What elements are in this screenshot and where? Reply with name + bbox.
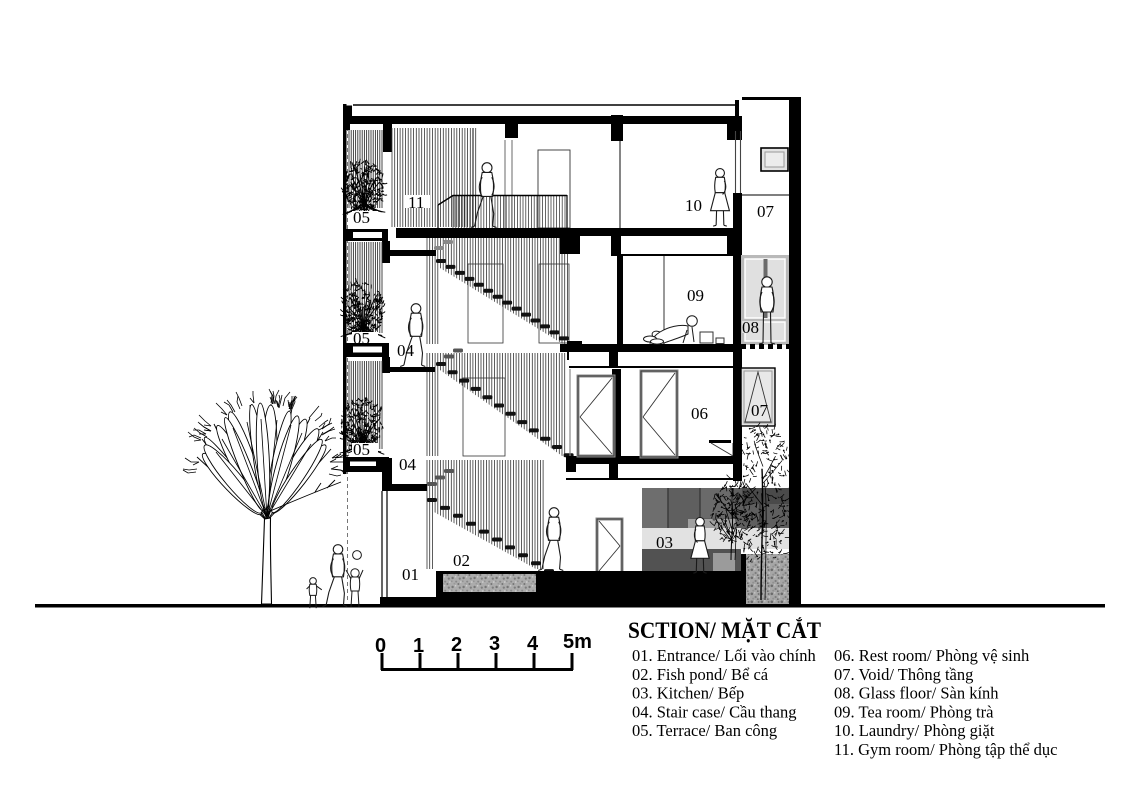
svg-text:02. Fish pond/ Bể cá: 02. Fish pond/ Bể cá <box>632 665 769 684</box>
svg-text:05: 05 <box>353 208 370 227</box>
svg-text:11: 11 <box>408 193 424 212</box>
svg-text:01. Entrance/ Lối vào chính: 01. Entrance/ Lối vào chính <box>632 646 816 665</box>
svg-text:09: 09 <box>687 286 704 305</box>
svg-text:4: 4 <box>527 633 539 655</box>
svg-text:10. Laundry/ Phòng giặt: 10. Laundry/ Phòng giặt <box>834 721 995 740</box>
svg-text:01: 01 <box>402 565 419 584</box>
svg-text:07: 07 <box>751 401 769 420</box>
svg-text:06. Rest room/ Phòng vệ sinh: 06. Rest room/ Phòng vệ sinh <box>834 646 1030 665</box>
svg-text:10: 10 <box>685 196 702 215</box>
svg-text:07: 07 <box>757 202 775 221</box>
svg-text:04: 04 <box>399 455 417 474</box>
svg-text:0: 0 <box>375 635 386 657</box>
svg-text:11. Gym room/ Phòng tập thể dụ: 11. Gym room/ Phòng tập thể dục <box>834 740 1058 759</box>
svg-text:09. Tea room/ Phòng trà: 09. Tea room/ Phòng trà <box>834 702 994 721</box>
svg-text:04. Stair case/ Cầu thang: 04. Stair case/ Cầu thang <box>632 702 797 721</box>
svg-text:3: 3 <box>489 633 500 655</box>
svg-text:03. Kitchen/ Bếp: 03. Kitchen/ Bếp <box>632 684 744 703</box>
svg-text:06: 06 <box>691 404 708 423</box>
svg-text:SCTION/ MẶT CẮT: SCTION/ MẶT CẮT <box>628 617 821 644</box>
svg-text:08. Glass floor/ Sàn kính: 08. Glass floor/ Sàn kính <box>834 684 999 703</box>
svg-text:07. Void/ Thông tầng: 07. Void/ Thông tầng <box>834 665 973 684</box>
svg-text:2: 2 <box>451 634 462 656</box>
svg-text:04: 04 <box>397 341 415 360</box>
svg-text:05. Terrace/ Ban công: 05. Terrace/ Ban công <box>632 721 777 740</box>
svg-text:1: 1 <box>413 635 424 657</box>
svg-text:05: 05 <box>353 440 370 459</box>
svg-text:02: 02 <box>453 551 470 570</box>
svg-text:5m: 5m <box>563 631 592 653</box>
svg-text:08: 08 <box>742 318 759 337</box>
